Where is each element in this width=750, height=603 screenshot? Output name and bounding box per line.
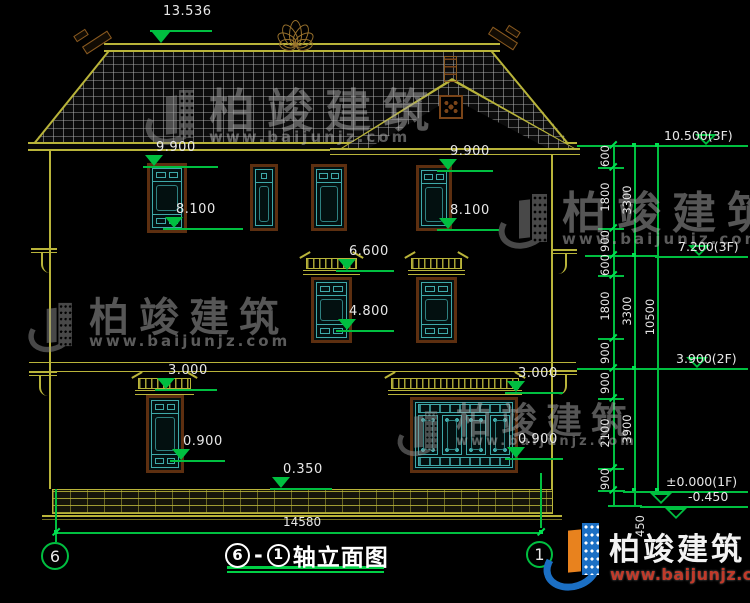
- chain-line-3: [657, 145, 659, 490]
- left-corbel-2f: [29, 371, 57, 396]
- stair-window-head-label: 6.600: [349, 244, 389, 259]
- ext-line: [577, 145, 662, 147]
- overall-dim-line: [56, 532, 541, 534]
- level-label-0000: ±0.000(1F): [666, 474, 737, 489]
- brand-url-text: www.baijunjz.com: [610, 565, 750, 584]
- dim-dot: [632, 366, 636, 370]
- level-label-3900: 3.900(2F): [676, 351, 737, 366]
- dim-600-b: 600: [598, 254, 612, 276]
- dim-dot: [655, 143, 659, 147]
- overall-dim-text: 14580: [283, 515, 321, 529]
- title-axis-end-circle: 1: [267, 544, 290, 567]
- level-label-neg450: -0.450: [688, 489, 728, 504]
- level-label-7200: 7.200(3F): [678, 239, 739, 254]
- dim-900-c: 900: [598, 372, 612, 394]
- ridge-height-label: 13.536: [163, 4, 212, 19]
- elevation-drawing-canvas: 13.536 9.900 9.900 8.100 8.100 6.600 4.8…: [0, 0, 750, 603]
- dim-900-a: 900: [598, 230, 612, 252]
- left-chimney-cap: [73, 29, 89, 42]
- watermark-cn-text: 柏竣建筑: [562, 192, 750, 236]
- dim-3900: 3900: [620, 414, 634, 443]
- dim-dot: [632, 253, 636, 257]
- stair-window-canopy-right: [408, 258, 465, 277]
- dim-10500: 10500: [643, 299, 657, 336]
- drawing-title: 6 - 1 轴立面图: [225, 538, 389, 572]
- chain-line-2: [634, 145, 636, 505]
- brand-logo: 柏竣建筑 www.baijunjz.com: [543, 520, 750, 600]
- bay-window-canopy: [388, 378, 522, 397]
- dim-900-d: 900: [598, 468, 612, 490]
- brand-cn-text: 柏竣建筑: [609, 524, 745, 569]
- watermark-cn-text: 柏竣建筑: [89, 298, 290, 338]
- dim-1800-b: 1800: [598, 291, 612, 320]
- dim-600-a: 600: [598, 145, 612, 167]
- chain-line-1: [613, 145, 615, 505]
- stair-window-right: [416, 277, 457, 343]
- sill-1f-label-left: 0.900: [183, 434, 223, 449]
- brand-building-icon: [568, 529, 581, 572]
- watermark-logo-icon: [498, 192, 554, 254]
- axis-line-right: [540, 473, 542, 528]
- eave-level-label-left: 9.900: [156, 140, 196, 155]
- title-axis-start-circle: 6: [225, 543, 250, 568]
- eave-level-label-right: 9.900: [450, 144, 490, 159]
- dim-900-b: 900: [598, 342, 612, 364]
- stair-window-left: [311, 277, 352, 343]
- dim-2100: 2100: [598, 418, 612, 447]
- brand-tower-icon: [582, 523, 599, 575]
- axis-line-left: [55, 489, 57, 542]
- right-corbel-3f: [551, 249, 577, 274]
- watermark-logo-icon: [28, 301, 78, 357]
- window-3f-2: [250, 164, 278, 231]
- ext-line: [585, 255, 657, 257]
- dim-dot: [632, 143, 636, 147]
- axis-bubble-6: 6: [41, 542, 69, 570]
- watermark: 柏竣建筑 www.baijunjz.com: [25, 298, 290, 360]
- brick-plinth: [52, 489, 553, 514]
- window-3f-3: [311, 164, 347, 231]
- watermark-url-text: www.baijunjz.com: [89, 332, 290, 350]
- head-1f-label-left: 3.000: [168, 363, 208, 378]
- plinth-top-label: 0.350: [283, 462, 323, 477]
- dim-1800-a: 1800: [598, 182, 612, 211]
- ext-line: [608, 505, 642, 507]
- title-text: 轴立面图: [293, 538, 389, 572]
- head-1f-label-right: 3.000: [518, 366, 558, 381]
- left-wall-line: [49, 151, 51, 489]
- sill-3f-label-right: 8.100: [450, 203, 490, 218]
- gable-finial: [444, 56, 457, 82]
- sill-3f-label-left: 8.100: [176, 202, 216, 217]
- left-corbel-3f: [31, 248, 57, 273]
- axis-bubble-6-number: 6: [50, 547, 60, 566]
- sill-1f-label-right: 0.900: [518, 432, 558, 447]
- bay-window-1f: [410, 397, 518, 473]
- level-label-10500: 10.500(3F): [664, 128, 733, 143]
- dim-dot: [54, 530, 58, 534]
- dim-3300-a: 3300: [620, 185, 634, 214]
- stair-window-sill-label: 4.800: [349, 304, 389, 319]
- title-dash: -: [254, 543, 263, 567]
- dim-3300-b: 3300: [620, 296, 634, 325]
- gable-vent: [439, 95, 463, 119]
- second-floor-band: [29, 362, 576, 372]
